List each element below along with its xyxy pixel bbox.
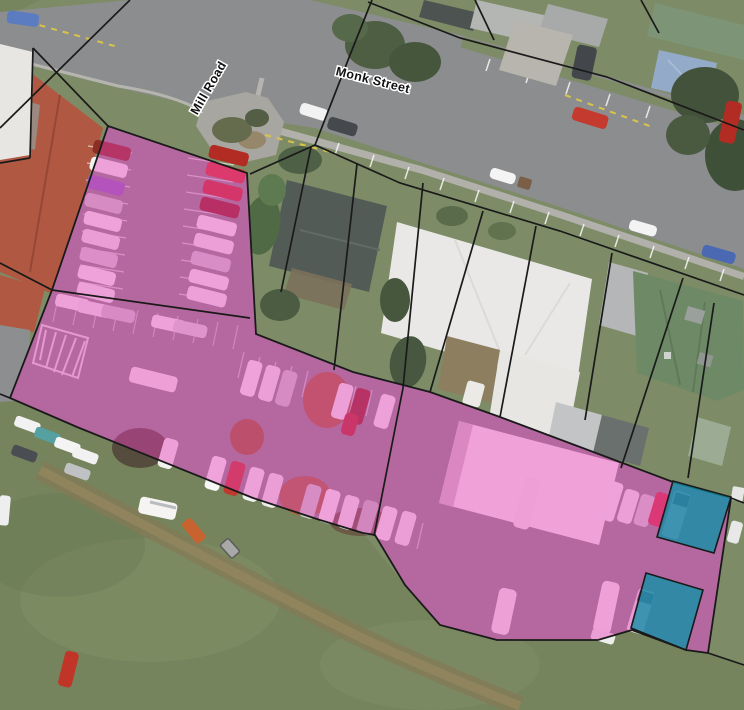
aerial-map-canvas[interactable]: Mill Road Monk Street — [0, 0, 744, 710]
tree — [332, 14, 368, 42]
tree — [278, 146, 322, 174]
aerial-map-viewport[interactable]: Mill Road Monk Street — [0, 0, 744, 710]
chimney — [664, 352, 671, 359]
tree — [258, 174, 286, 206]
bush — [488, 222, 516, 240]
tree — [260, 289, 300, 321]
white-strip-building — [0, 44, 33, 160]
tree — [389, 42, 441, 82]
tree — [666, 115, 710, 155]
bush — [436, 206, 468, 226]
tree — [380, 278, 410, 322]
island-bush — [245, 109, 269, 127]
